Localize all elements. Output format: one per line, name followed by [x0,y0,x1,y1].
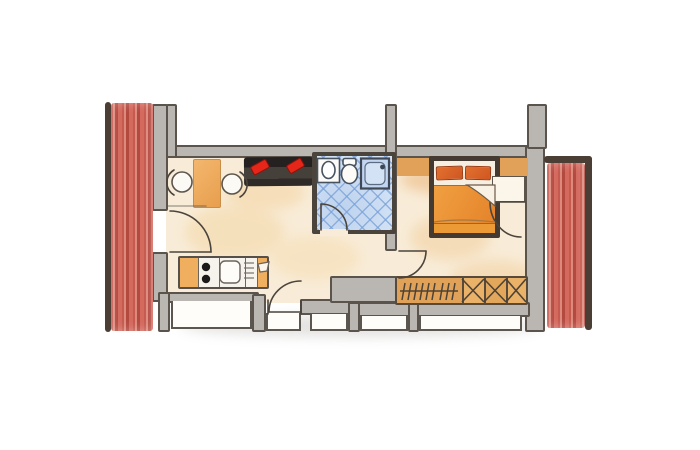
blanket-fold [467,185,495,206]
shower-head-icon [380,165,385,170]
bedroom-door-swing [399,251,426,278]
bedroom-right-door-swing [490,202,525,237]
washbasin [318,159,340,183]
floor-plan [0,0,700,450]
cup-icon [258,262,269,272]
toilet [342,159,358,184]
chair-left [167,170,192,195]
wardrobe-hanging-rail [400,283,458,300]
wardrobe-x-shelves [462,279,526,302]
sketch-overlay [0,0,700,450]
balcony-door-swing [268,281,301,314]
blanket-seam [434,220,495,222]
chair-right [222,172,247,197]
stove-burners [202,263,210,283]
shower [361,159,389,189]
sink-basin [220,261,240,283]
bathroom-door-swing [321,204,347,230]
entrance-door-swing [170,211,211,252]
drainer-lines [244,263,254,278]
